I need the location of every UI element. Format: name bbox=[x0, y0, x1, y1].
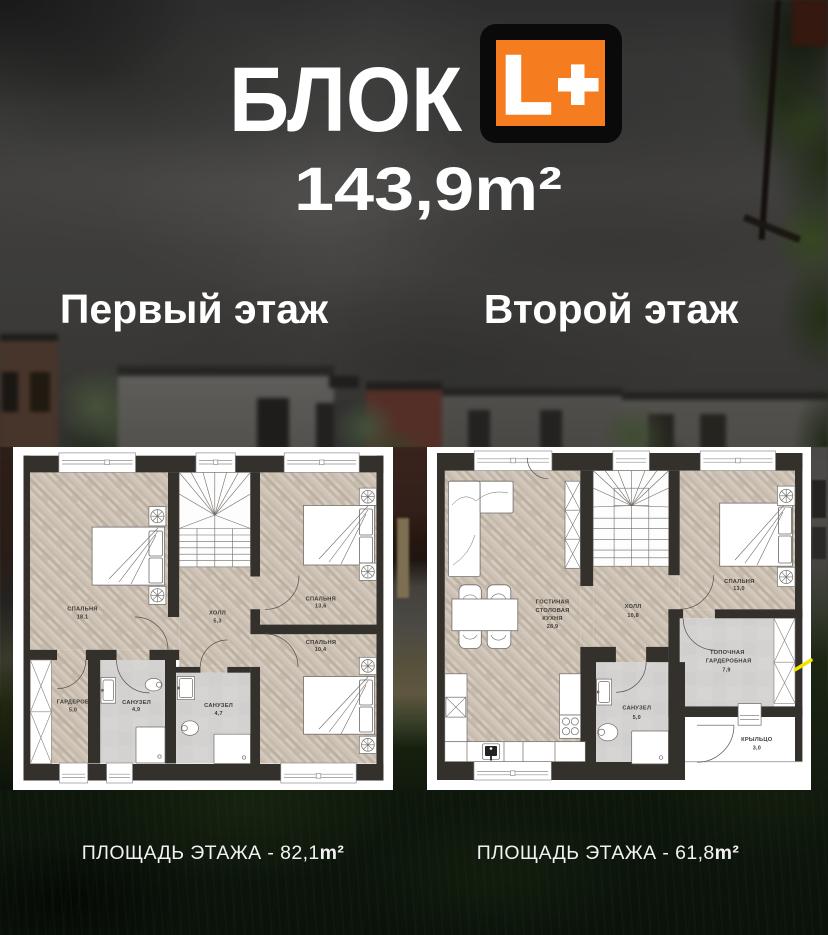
svg-text:СТОЛОВАЯ: СТОЛОВАЯ bbox=[535, 608, 569, 614]
svg-text:10,4: 10,4 bbox=[315, 647, 327, 653]
svg-text:13,6: 13,6 bbox=[315, 604, 327, 610]
svg-text:5,3: 5,3 bbox=[213, 619, 221, 625]
svg-text:САНУЗЕЛ: САНУЗЕЛ bbox=[622, 705, 651, 711]
svg-text:ГАРДЕРОБНАЯ: ГАРДЕРОБНАЯ bbox=[706, 659, 752, 665]
svg-text:ГОСТИНАЯ: ГОСТИНАЯ bbox=[536, 599, 569, 605]
svg-text:ХОЛЛ: ХОЛЛ bbox=[209, 610, 226, 616]
svg-text:4,7: 4,7 bbox=[214, 711, 222, 717]
svg-text:КРЫЛЬЦО: КРЫЛЬЦО bbox=[741, 737, 773, 743]
svg-text:СПАЛЬНЯ: СПАЛЬНЯ bbox=[724, 579, 754, 585]
svg-text:САНУЗЕЛ: САНУЗЕЛ bbox=[122, 700, 151, 706]
svg-text:СПАЛЬНЯ: СПАЛЬНЯ bbox=[306, 597, 336, 603]
svg-text:4,9: 4,9 bbox=[132, 707, 140, 713]
svg-text:ГАРДЕРОБ: ГАРДЕРОБ bbox=[57, 699, 89, 705]
svg-text:18,1: 18,1 bbox=[77, 615, 89, 621]
svg-text:САНУЗЕЛ: САНУЗЕЛ bbox=[204, 703, 233, 709]
svg-text:5,0: 5,0 bbox=[633, 715, 641, 721]
svg-text:13,0: 13,0 bbox=[733, 586, 745, 592]
svg-text:ТОПОЧНАЯ: ТОПОЧНАЯ bbox=[710, 650, 745, 656]
svg-text:СПАЛЬНЯ: СПАЛЬНЯ bbox=[306, 640, 336, 646]
svg-text:КУХНЯ: КУХНЯ bbox=[542, 616, 562, 622]
svg-text:10,8: 10,8 bbox=[627, 613, 639, 619]
svg-text:СПАЛЬНЯ: СПАЛЬНЯ bbox=[67, 606, 97, 612]
svg-text:3,0: 3,0 bbox=[753, 746, 761, 752]
svg-text:7,9: 7,9 bbox=[722, 667, 730, 673]
svg-text:5,0: 5,0 bbox=[69, 708, 77, 714]
svg-text:ХОЛЛ: ХОЛЛ bbox=[625, 604, 642, 610]
svg-text:28,9: 28,9 bbox=[547, 624, 559, 630]
